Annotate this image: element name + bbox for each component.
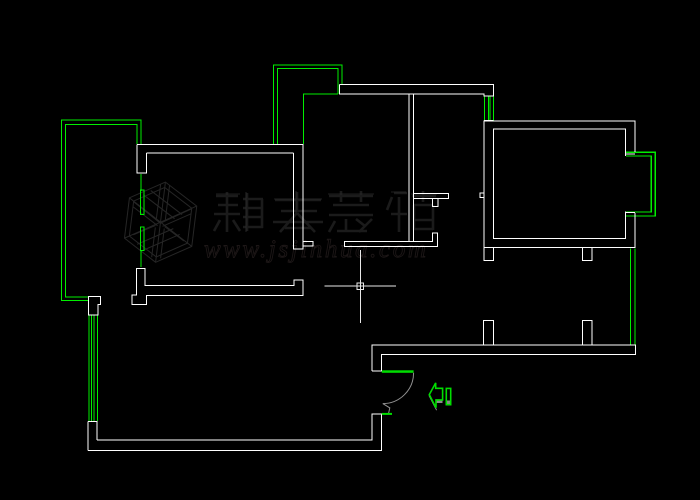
svg-text:www.jsjinhua.com: www.jsjinhua.com: [204, 236, 429, 263]
